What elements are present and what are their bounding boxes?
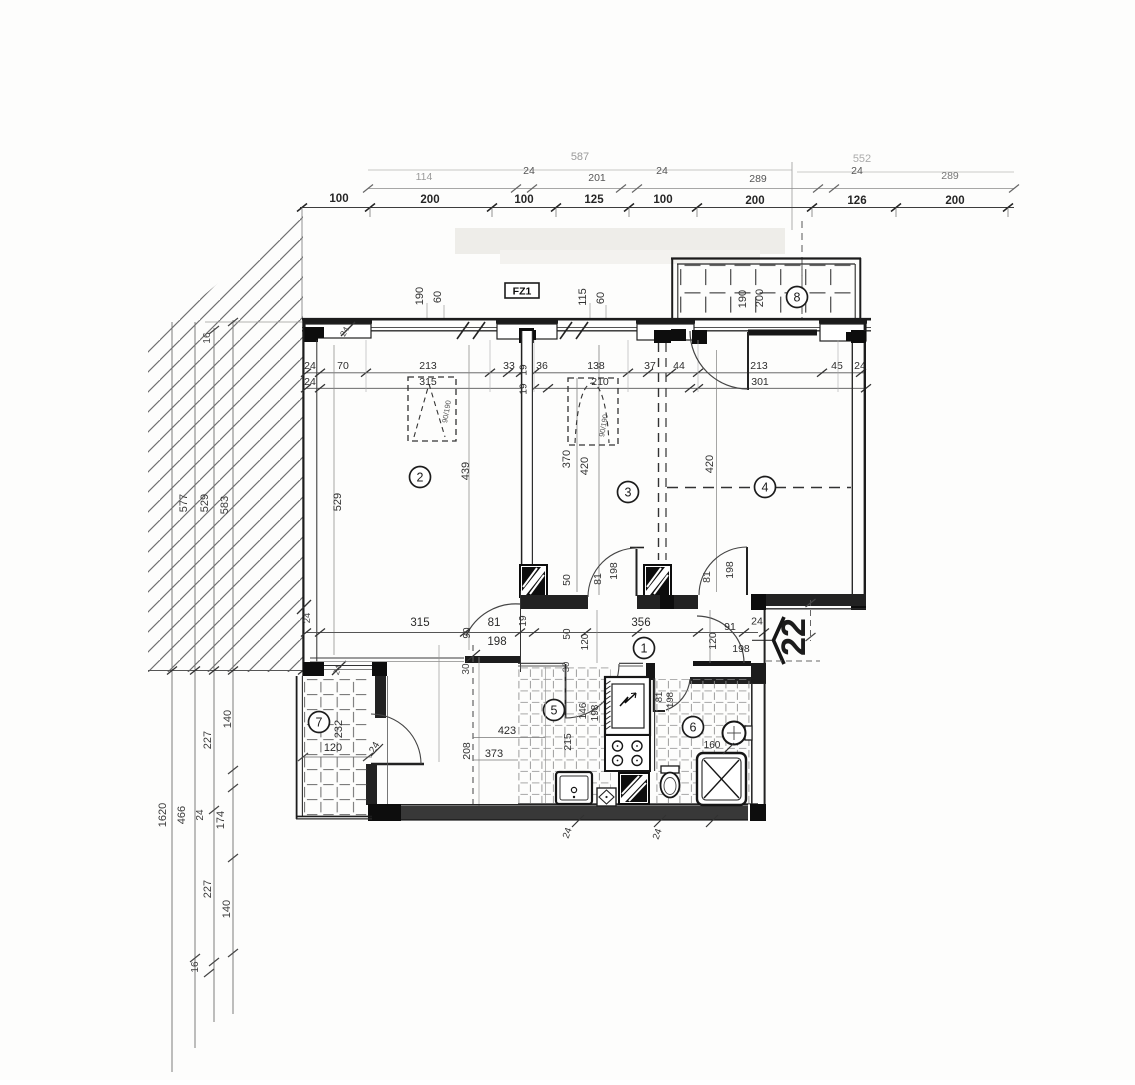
svg-text:6: 6 (690, 721, 697, 735)
svg-text:33: 33 (503, 360, 515, 372)
svg-text:198: 198 (665, 692, 676, 708)
svg-text:227: 227 (202, 731, 214, 749)
svg-text:126: 126 (847, 195, 866, 207)
svg-text:19: 19 (519, 364, 530, 376)
svg-text:200: 200 (754, 289, 766, 307)
svg-text:81: 81 (488, 617, 501, 629)
svg-text:140: 140 (221, 900, 233, 918)
svg-text:FZ1: FZ1 (513, 286, 532, 298)
svg-text:227: 227 (202, 880, 214, 898)
svg-text:420: 420 (704, 455, 716, 473)
svg-text:215: 215 (562, 733, 574, 751)
svg-text:24: 24 (656, 165, 668, 177)
svg-text:36: 36 (536, 360, 548, 372)
svg-text:60: 60 (432, 291, 444, 303)
svg-text:315: 315 (410, 617, 429, 629)
svg-text:140: 140 (222, 710, 234, 728)
svg-text:70: 70 (337, 360, 349, 372)
svg-text:7: 7 (316, 716, 323, 730)
svg-text:213: 213 (750, 360, 768, 372)
svg-text:198: 198 (724, 561, 736, 579)
svg-text:552: 552 (853, 153, 871, 165)
svg-text:50: 50 (561, 574, 573, 586)
svg-text:146: 146 (578, 702, 589, 719)
svg-text:24: 24 (304, 360, 316, 372)
svg-text:81: 81 (592, 573, 604, 585)
svg-text:583: 583 (219, 496, 231, 514)
svg-text:201: 201 (588, 172, 606, 184)
svg-text:91: 91 (724, 621, 736, 633)
svg-text:466: 466 (176, 806, 188, 824)
svg-text:198: 198 (590, 704, 601, 721)
svg-text:115: 115 (577, 288, 589, 306)
svg-text:370: 370 (561, 450, 573, 468)
svg-text:423: 423 (498, 725, 516, 737)
svg-text:2: 2 (417, 471, 424, 485)
svg-text:289: 289 (941, 170, 959, 182)
svg-text:114: 114 (416, 171, 433, 183)
svg-text:289: 289 (749, 173, 767, 185)
svg-text:81: 81 (654, 692, 665, 703)
svg-text:120: 120 (707, 632, 719, 650)
svg-text:420: 420 (579, 457, 591, 475)
svg-text:208: 208 (461, 742, 473, 760)
svg-text:90: 90 (462, 627, 473, 639)
svg-text:60: 60 (595, 292, 607, 304)
svg-text:8: 8 (794, 291, 801, 305)
svg-text:100: 100 (329, 193, 348, 205)
svg-text:24: 24 (304, 376, 316, 388)
svg-text:24: 24 (851, 165, 863, 177)
svg-text:100: 100 (653, 194, 672, 206)
svg-text:30: 30 (561, 662, 572, 673)
svg-text:100: 100 (514, 194, 533, 206)
svg-text:200: 200 (945, 195, 964, 207)
svg-text:125: 125 (584, 194, 604, 206)
svg-text:356: 356 (631, 617, 650, 629)
svg-text:45: 45 (831, 360, 843, 372)
svg-text:24: 24 (302, 613, 313, 624)
svg-text:439: 439 (460, 462, 472, 480)
svg-text:174: 174 (215, 811, 227, 829)
svg-text:120: 120 (580, 633, 591, 650)
svg-text:1620: 1620 (157, 803, 169, 827)
svg-text:190: 190 (737, 290, 749, 308)
svg-text:19: 19 (518, 615, 529, 627)
svg-text:529: 529 (332, 493, 344, 511)
svg-text:22: 22 (775, 618, 813, 656)
svg-text:529: 529 (199, 494, 211, 512)
svg-text:198: 198 (487, 636, 506, 648)
svg-text:16: 16 (190, 961, 201, 973)
svg-text:301: 301 (751, 376, 769, 388)
svg-text:5: 5 (551, 704, 558, 718)
svg-text:44: 44 (673, 360, 685, 372)
svg-text:200: 200 (420, 194, 439, 206)
svg-text:198: 198 (732, 643, 750, 655)
svg-text:120: 120 (324, 742, 342, 754)
svg-text:16: 16 (202, 332, 213, 344)
svg-text:24: 24 (523, 165, 535, 177)
svg-text:24: 24 (751, 616, 763, 628)
svg-text:213: 213 (419, 360, 437, 372)
svg-text:200: 200 (745, 195, 764, 207)
svg-text:24: 24 (195, 809, 206, 821)
svg-text:577: 577 (178, 494, 190, 512)
svg-text:138: 138 (587, 360, 605, 372)
svg-text:587: 587 (571, 151, 589, 163)
svg-text:160: 160 (704, 740, 721, 751)
svg-text:30: 30 (461, 663, 472, 675)
svg-text:37: 37 (644, 360, 656, 372)
svg-text:190: 190 (414, 287, 426, 305)
svg-text:232: 232 (333, 720, 345, 738)
svg-text:315: 315 (419, 376, 437, 388)
svg-text:373: 373 (485, 748, 503, 760)
svg-text:19: 19 (519, 383, 530, 395)
svg-text:3: 3 (625, 486, 632, 500)
svg-text:198: 198 (608, 562, 620, 580)
svg-text:4: 4 (762, 481, 769, 495)
svg-text:50: 50 (562, 628, 573, 640)
svg-text:1: 1 (641, 642, 648, 656)
